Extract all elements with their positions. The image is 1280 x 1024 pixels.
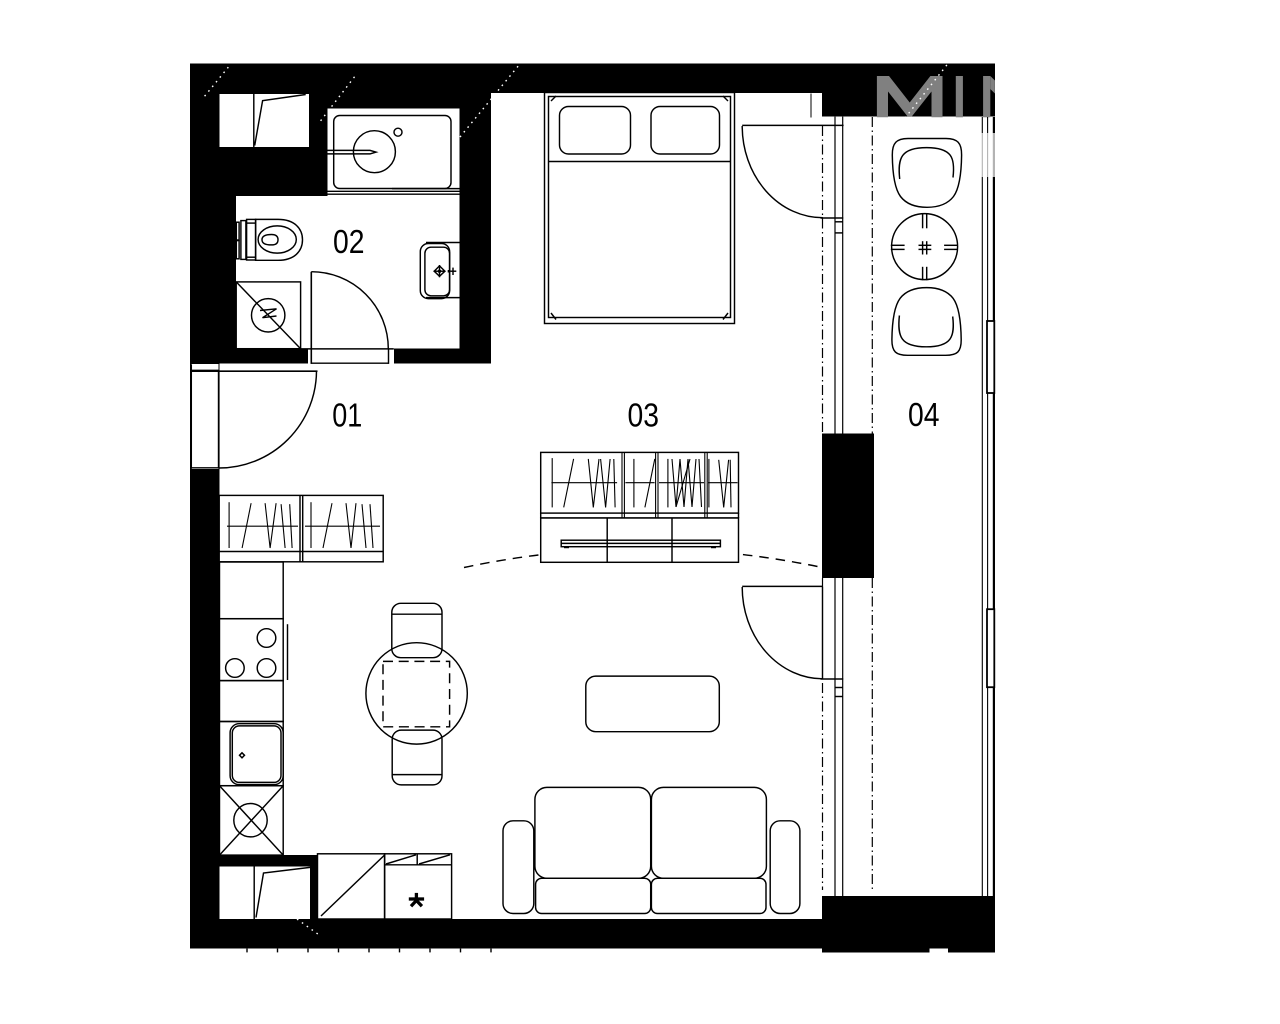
svg-text:03: 03 — [628, 398, 660, 435]
svg-text:01: 01 — [332, 398, 362, 435]
svg-text:04: 04 — [908, 397, 940, 434]
svg-text:02: 02 — [333, 224, 365, 261]
